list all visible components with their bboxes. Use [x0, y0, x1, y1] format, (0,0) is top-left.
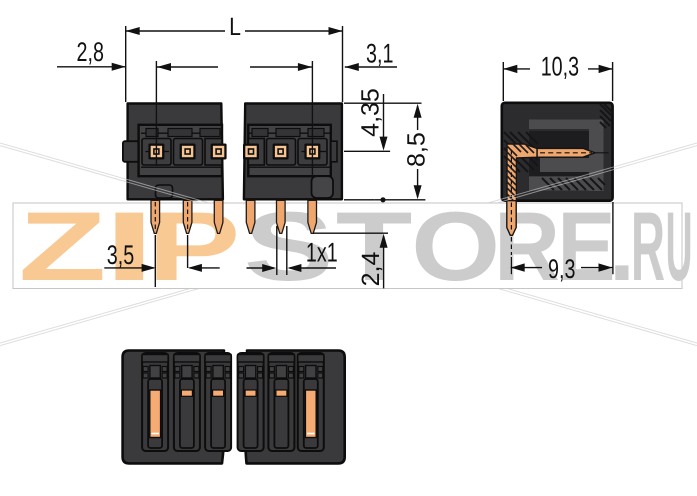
svg-text:10,3: 10,3 [541, 52, 579, 82]
svg-text:E: E [557, 191, 615, 301]
svg-text:U: U [666, 191, 693, 301]
svg-text:8,5: 8,5 [403, 132, 431, 167]
svg-text:P: P [147, 191, 240, 301]
svg-text:R: R [494, 191, 560, 301]
svg-text:9,3: 9,3 [548, 254, 575, 284]
svg-text:R: R [631, 191, 665, 301]
svg-text:1x1: 1x1 [306, 238, 338, 268]
svg-text:2,8: 2,8 [76, 37, 103, 67]
svg-text:O: O [411, 191, 500, 301]
svg-text:3,5: 3,5 [107, 240, 134, 270]
svg-text:2,4: 2,4 [357, 252, 385, 287]
svg-text:L: L [229, 13, 241, 41]
svg-text:3,1: 3,1 [366, 38, 393, 68]
svg-text:4,35: 4,35 [356, 88, 384, 137]
svg-text:Z: Z [18, 191, 106, 301]
